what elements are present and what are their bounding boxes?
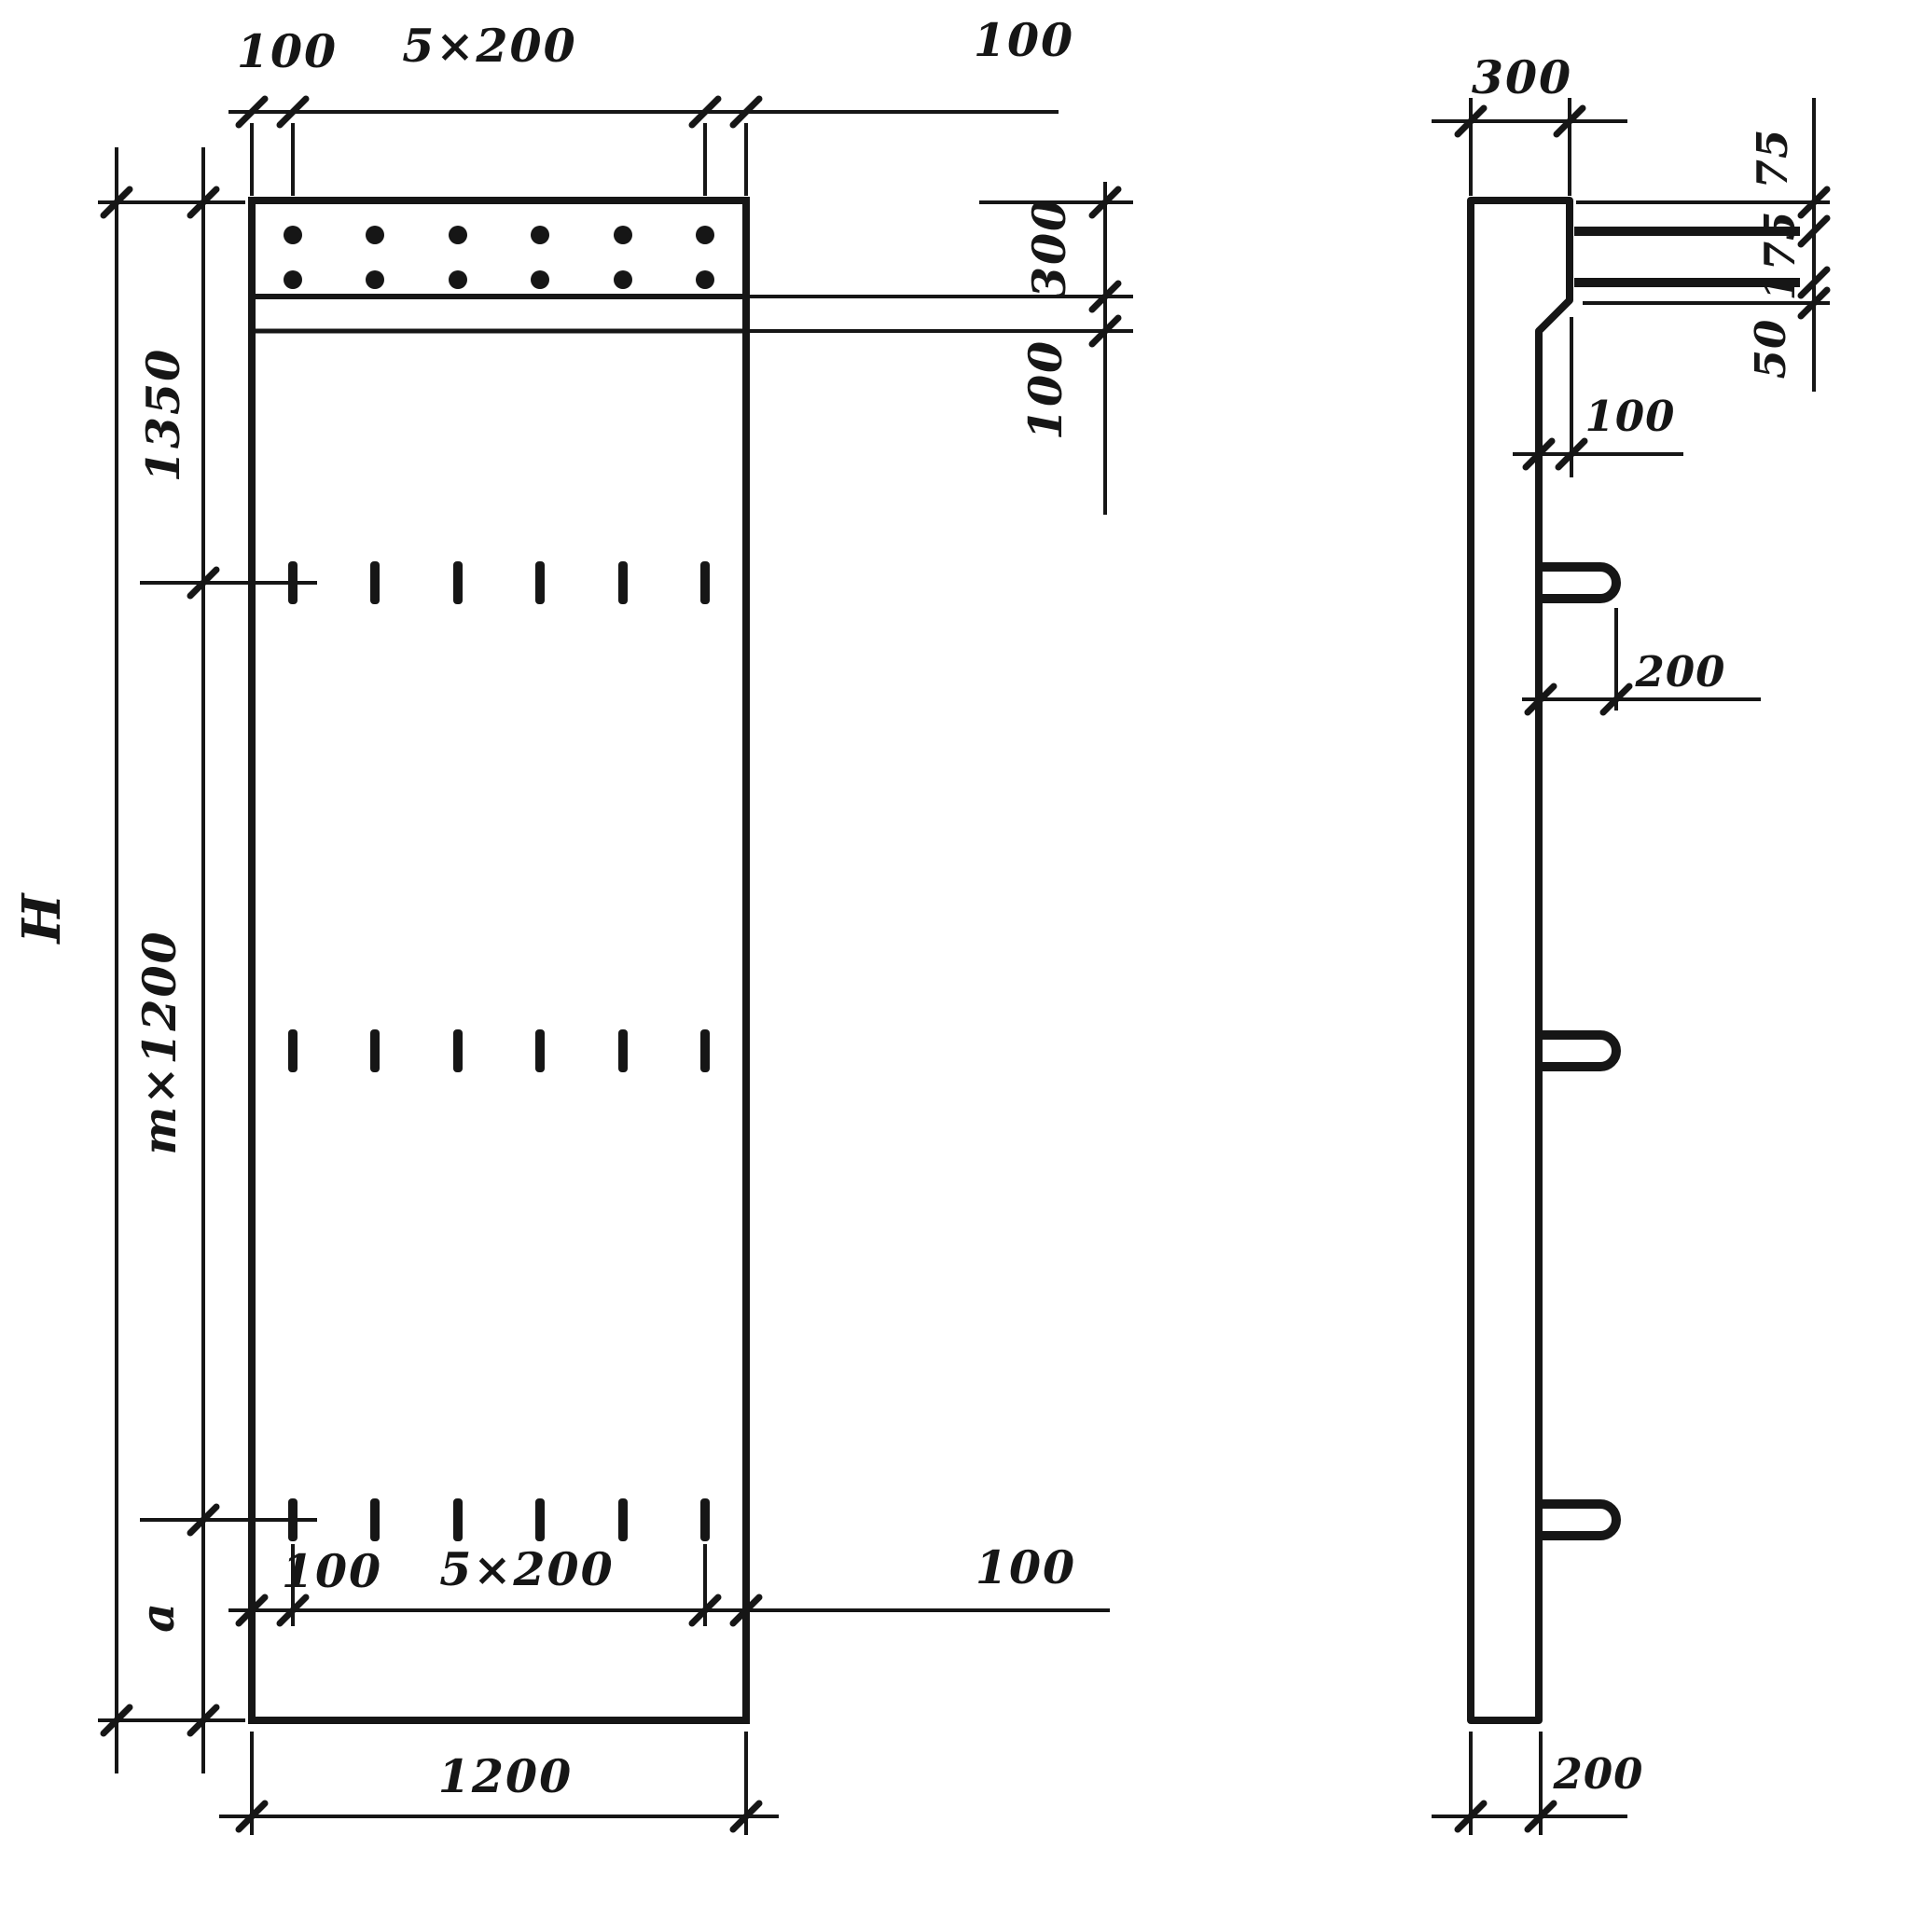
dim-chain-top: 100 5×200 100 — [228, 13, 1074, 196]
dim-label-bottom-inner-right: 100 — [976, 1540, 1076, 1594]
front-panel-outline — [252, 200, 746, 1720]
side-view: 75 175 50 100 200 — [1432, 50, 1830, 1835]
dim-chain-left: 1350 m×1200 a H — [11, 147, 317, 1773]
dim-chain-side-right: 75 175 50 — [1746, 98, 1827, 392]
dim-label-bottom-inner-left: 100 — [282, 1544, 382, 1598]
dim-label-gap-bottom: 50 — [1746, 319, 1795, 379]
dim-label-panel-width: 1200 — [438, 1749, 573, 1803]
drawing-canvas: 100 5×200 100 1350 m×1200 a H 300 10 — [0, 0, 1910, 1932]
side-panel-outline — [1471, 200, 1570, 1720]
bar-slot-rows — [288, 561, 710, 1541]
dim-label-overall-height: H — [11, 891, 73, 945]
front-view: 100 5×200 100 1350 m×1200 a H 300 10 — [11, 13, 1133, 1835]
dim-side-bottom-thickness: 200 — [1432, 1732, 1643, 1835]
dim-loop-protrusion: 200 — [1522, 608, 1761, 712]
dim-label-gap-mid: 175 — [1755, 211, 1805, 301]
dim-label-loop-protrusion: 200 — [1635, 647, 1726, 697]
dim-label-gap-top: 75 — [1748, 129, 1797, 189]
dim-label-bottom-inner-span: 5×200 — [439, 1542, 614, 1596]
anchor-band-lines — [252, 297, 1133, 331]
dim-label-side-top-width: 300 — [1472, 50, 1572, 104]
dim-chain-right: 300 100 — [979, 182, 1133, 515]
dim-label-left-upper: 1350 — [136, 348, 190, 482]
dim-label-step-offset: 100 — [1585, 392, 1676, 441]
dim-label-top-span: 5×200 — [402, 19, 576, 73]
dim-label-bottom-thickness: 200 — [1553, 1749, 1644, 1799]
dim-label-band-height: 300 — [1022, 198, 1076, 298]
dim-label-left-middle: m×1200 — [132, 930, 187, 1154]
dim-label-left-lower: a — [131, 1601, 185, 1633]
dim-label-top-left: 100 — [237, 24, 338, 78]
dim-chain-bottom-inner: 100 5×200 100 — [228, 1540, 1110, 1626]
dim-side-top-width: 300 — [1432, 50, 1627, 196]
dim-label-top-right: 100 — [974, 13, 1074, 67]
dim-chain-bottom-overall: 1200 — [219, 1732, 779, 1835]
dim-label-strip-height: 100 — [1018, 339, 1073, 440]
drawing-sheet: 100 5×200 100 1350 m×1200 a H 300 10 — [0, 0, 1910, 1932]
anchor-dots-grid — [284, 226, 714, 289]
